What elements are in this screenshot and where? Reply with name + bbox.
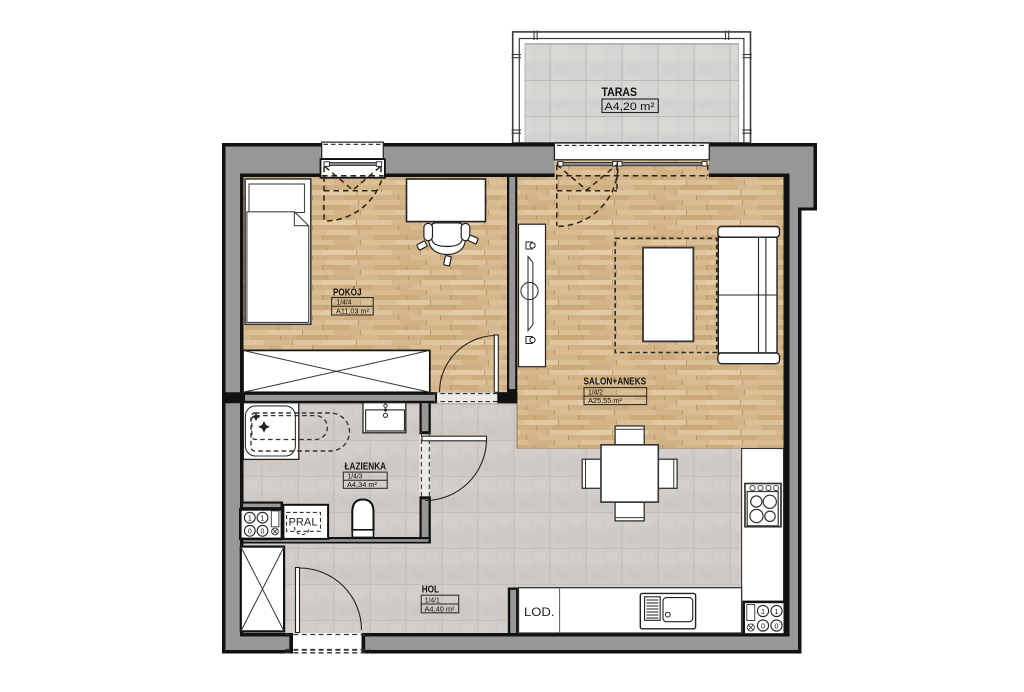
svg-text:POKÓJ: POKÓJ (333, 286, 362, 299)
svg-text:A11,03 m²: A11,03 m² (336, 307, 369, 316)
svg-text:0: 0 (775, 621, 779, 630)
svg-text:ŁAZIENKA: ŁAZIENKA (345, 460, 387, 472)
svg-text:PRAL: PRAL (289, 517, 318, 529)
svg-text:LOD.: LOD. (524, 607, 555, 619)
svg-text:0: 0 (761, 621, 765, 630)
svg-text:A25,55 m²: A25,55 m² (588, 396, 622, 405)
svg-text:HOL: HOL (422, 584, 440, 596)
svg-text:A4,20 m²: A4,20 m² (605, 101, 655, 113)
svg-text:1: 1 (261, 515, 265, 522)
svg-text:A4,40 m²: A4,40 m² (425, 604, 455, 613)
svg-text:1/4/4: 1/4/4 (337, 300, 352, 307)
svg-text:SALON+ANEKS: SALON+ANEKS (583, 375, 646, 387)
svg-text:1/4/1: 1/4/1 (425, 597, 440, 604)
svg-text:1: 1 (761, 607, 765, 616)
svg-text:A4,34 m²: A4,34 m² (347, 480, 377, 489)
svg-text:0: 0 (248, 529, 252, 536)
svg-text:0: 0 (261, 529, 265, 536)
svg-text:TARAS: TARAS (602, 87, 638, 99)
svg-text:1: 1 (775, 607, 779, 616)
svg-text:1: 1 (248, 515, 252, 522)
